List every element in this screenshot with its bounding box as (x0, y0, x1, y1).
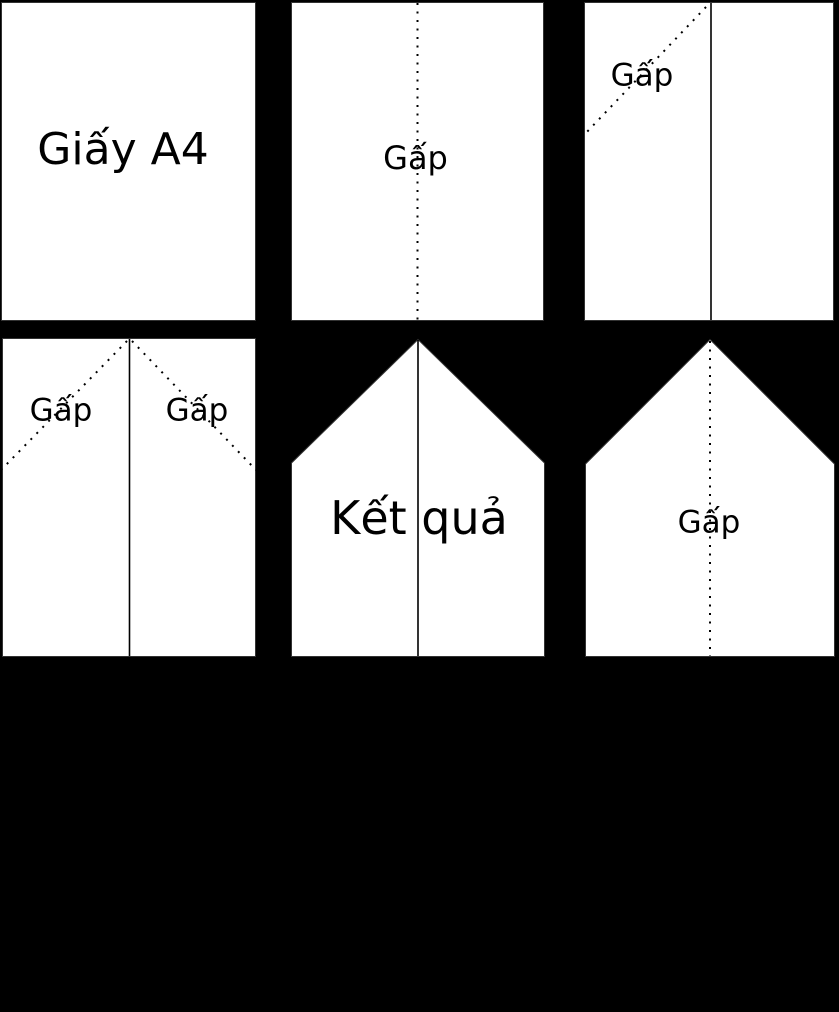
paper-rect-shape (2, 338, 256, 657)
panel-step-4-fold-both-corners: Gấp Gấp (2, 338, 256, 657)
result-label: Kết quả (330, 495, 508, 541)
paper-rect-shape (584, 2, 834, 321)
paper-outline (585, 3, 834, 321)
fold-label: Gấp (678, 508, 741, 539)
fold-label-right: Gấp (166, 396, 229, 427)
panel-step-5-result: Kết quả (291, 339, 545, 657)
paper-label: Giấy A4 (37, 128, 208, 172)
fold-label: Gấp (383, 142, 448, 174)
panel-step-6-fold-result-center: Gấp (585, 339, 835, 657)
folding-diagram: Giấy A4 Gấp Gấp Gấp Gấp (0, 0, 839, 1012)
folded-paper-shape (585, 339, 835, 657)
fold-label: Gấp (611, 61, 674, 92)
panel-step-3-fold-left-corner: Gấp (584, 2, 834, 321)
paper-outline (586, 340, 835, 657)
panel-step-2-fold-center: Gấp (291, 2, 544, 321)
panel-step-1-paper: Giấy A4 (1, 2, 256, 321)
fold-label-left: Gấp (30, 396, 93, 427)
